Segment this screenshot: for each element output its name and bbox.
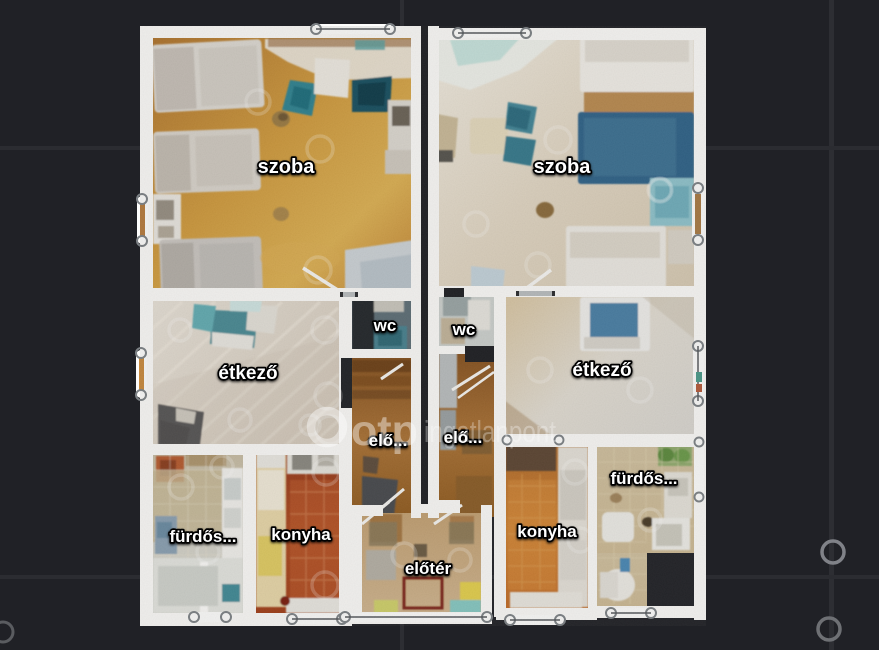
svg-text:otp: otp [351,407,418,455]
svg-text:szoba: szoba [534,156,592,178]
svg-text:szoba: szoba [258,156,316,178]
svg-text:wc: wc [373,316,397,335]
svg-text:wc: wc [452,320,476,339]
svg-text:konyha: konyha [271,525,331,544]
svg-text:fürdős...: fürdős... [610,469,677,488]
svg-text:étkező: étkező [572,360,631,381]
svg-text:előtér: előtér [405,559,452,578]
svg-text:fürdős...: fürdős... [169,527,236,546]
svg-text:konyha: konyha [517,522,577,541]
svg-text:étkező: étkező [218,363,277,384]
svg-text:ingatlanpont: ingatlanpont [424,414,556,449]
